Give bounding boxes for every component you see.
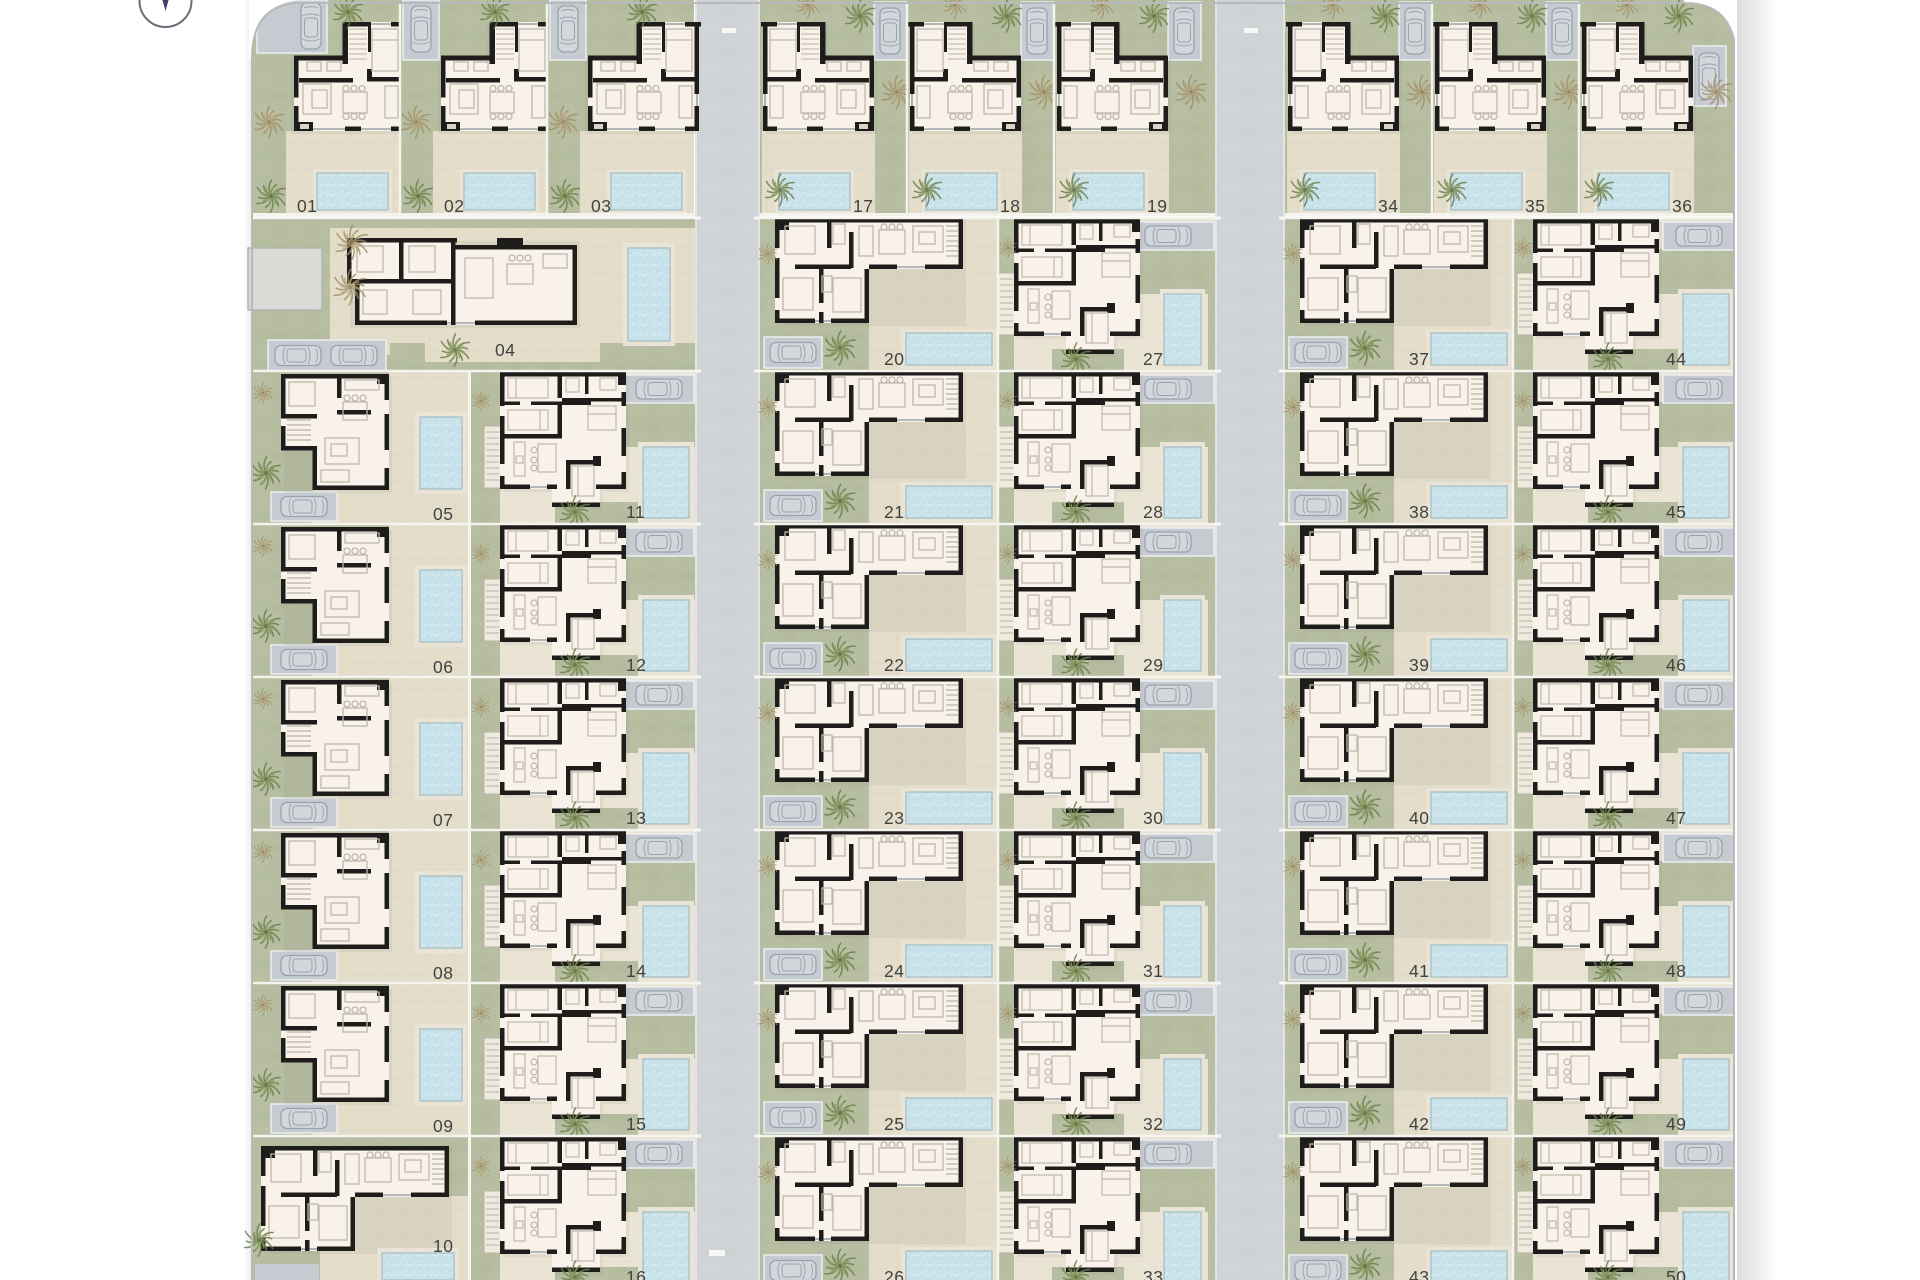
svg-text:10: 10 bbox=[433, 1236, 453, 1256]
svg-text:47: 47 bbox=[1666, 808, 1686, 828]
svg-text:50: 50 bbox=[1666, 1267, 1686, 1280]
svg-text:48: 48 bbox=[1666, 961, 1686, 981]
svg-text:37: 37 bbox=[1409, 349, 1429, 369]
svg-text:09: 09 bbox=[433, 1116, 453, 1136]
svg-text:42: 42 bbox=[1409, 1114, 1429, 1134]
svg-text:11: 11 bbox=[626, 502, 645, 522]
svg-text:31: 31 bbox=[1143, 961, 1163, 981]
svg-text:05: 05 bbox=[433, 504, 453, 524]
svg-text:44: 44 bbox=[1666, 349, 1686, 369]
svg-text:38: 38 bbox=[1409, 502, 1429, 522]
svg-text:22: 22 bbox=[884, 655, 904, 675]
svg-text:29: 29 bbox=[1143, 655, 1163, 675]
svg-text:28: 28 bbox=[1143, 502, 1163, 522]
svg-text:43: 43 bbox=[1409, 1267, 1429, 1280]
svg-text:40: 40 bbox=[1409, 808, 1429, 828]
svg-text:46: 46 bbox=[1666, 655, 1686, 675]
svg-text:04: 04 bbox=[495, 340, 515, 360]
svg-text:26: 26 bbox=[884, 1267, 904, 1280]
svg-text:16: 16 bbox=[626, 1267, 646, 1280]
svg-text:27: 27 bbox=[1143, 349, 1163, 369]
svg-text:20: 20 bbox=[884, 349, 904, 369]
svg-text:45: 45 bbox=[1666, 502, 1686, 522]
svg-text:06: 06 bbox=[433, 657, 453, 677]
svg-text:21: 21 bbox=[884, 502, 904, 522]
svg-text:39: 39 bbox=[1409, 655, 1429, 675]
svg-text:12: 12 bbox=[626, 655, 646, 675]
svg-text:07: 07 bbox=[433, 810, 453, 830]
svg-text:30: 30 bbox=[1143, 808, 1163, 828]
svg-text:32: 32 bbox=[1143, 1114, 1163, 1134]
svg-text:08: 08 bbox=[433, 963, 453, 983]
svg-text:13: 13 bbox=[626, 808, 646, 828]
svg-text:15: 15 bbox=[626, 1114, 646, 1134]
svg-text:25: 25 bbox=[884, 1114, 904, 1134]
svg-text:14: 14 bbox=[626, 961, 646, 981]
svg-text:41: 41 bbox=[1409, 961, 1429, 981]
svg-text:49: 49 bbox=[1666, 1114, 1686, 1134]
svg-text:23: 23 bbox=[884, 808, 904, 828]
svg-text:33: 33 bbox=[1143, 1267, 1163, 1280]
svg-text:24: 24 bbox=[884, 961, 904, 981]
